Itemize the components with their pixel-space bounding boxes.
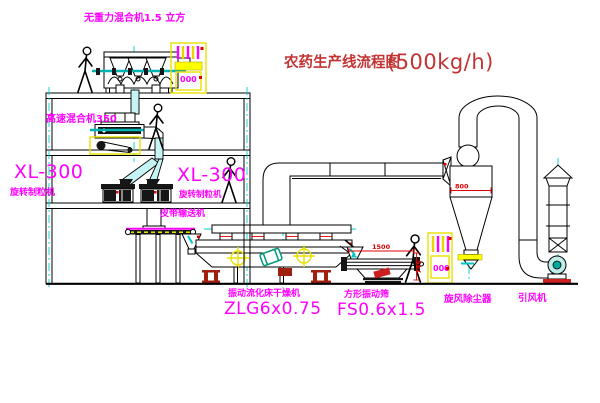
label-granulator-left-model: XL-300 <box>14 161 83 183</box>
y-chute <box>119 138 163 185</box>
fluid-bed-dryer <box>196 225 357 283</box>
label-fan: 引风机 <box>518 292 547 304</box>
dim-sieve-length-text: 1500 <box>372 243 391 251</box>
label-sieve-name: 方形振动筛 <box>344 288 389 300</box>
cabinet-stripes <box>178 46 198 59</box>
control-cabinet-ground: 000 <box>428 233 452 283</box>
label-gravity-mixer: 无重力混合机1.5 立方 <box>83 11 185 24</box>
process-flow-drawing: 000 000 1500 745 <box>0 0 600 403</box>
control-cabinet-top: 000 <box>171 43 206 93</box>
label-belt-conveyor: 皮带输送机 <box>159 207 205 219</box>
down-pipe <box>131 90 139 114</box>
label-dryer-model: ZLG6x0.75 <box>224 299 322 319</box>
worker-figure <box>78 47 92 92</box>
label-dryer-name: 振动流化床干燥机 <box>228 287 300 299</box>
granulator-right <box>139 180 173 202</box>
label-high-speed-mixer: 高速混合机350 <box>46 112 117 125</box>
diagram-canvas: 000 000 1500 745 <box>0 0 600 403</box>
cyclone <box>450 145 492 269</box>
label-sieve-model: FS0.6x1.5 <box>337 300 426 320</box>
cabinet-stripes <box>433 236 448 252</box>
label-granulator-right-model: XL-300 <box>177 164 246 186</box>
exhaust-stack <box>544 165 572 252</box>
dryer-support-right <box>311 270 331 283</box>
label-granulator-left-name: 旋转制粒机 <box>9 186 55 198</box>
dim-sieve-height-text: 745 <box>415 260 423 274</box>
dryer-support-left <box>202 270 220 283</box>
diagram-title: 农药生产线流程图 <box>283 53 400 71</box>
label-granulator-right-name: 旋转制粒机 <box>178 189 222 200</box>
flex-connectors <box>220 233 332 240</box>
diagram-title-capacity: (500kg/h) <box>387 50 494 74</box>
cabinet-display-text: 000 <box>180 75 197 84</box>
overhead-duct <box>263 157 451 225</box>
label-cyclone: 旋风除尘器 <box>443 293 492 305</box>
granulator-left <box>101 180 135 202</box>
dim-cyclone-text: 800 <box>455 183 469 191</box>
